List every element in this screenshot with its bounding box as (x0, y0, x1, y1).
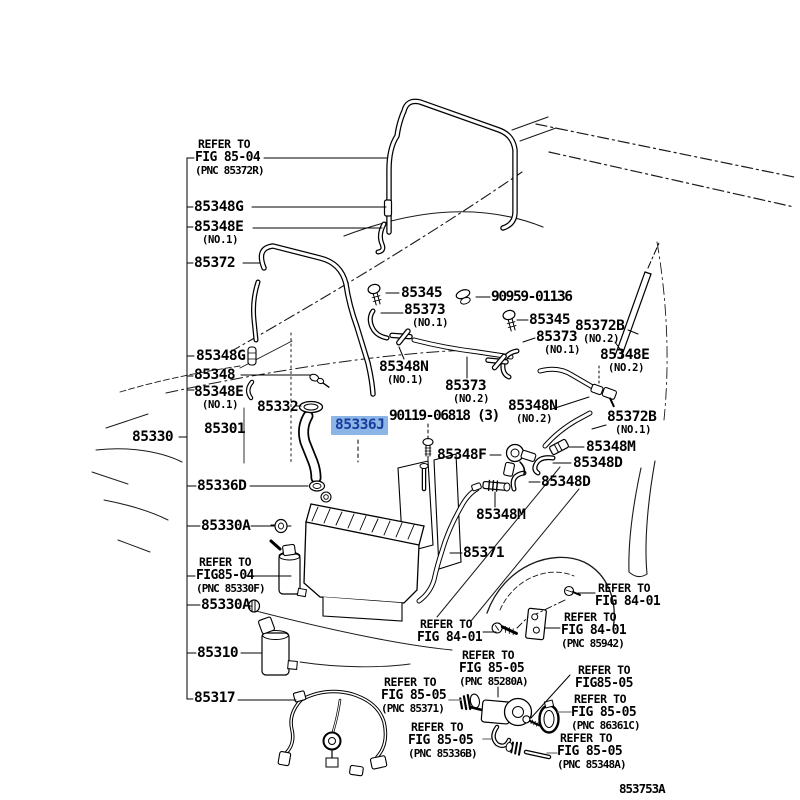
bolt-icon (565, 587, 581, 596)
part-number: 85301 (204, 421, 245, 437)
part-label-85371: 85371 (463, 546, 504, 561)
part-label-85348n: 85348N(NO.1) (379, 360, 428, 386)
hose-joint-icon (588, 383, 619, 406)
part-label-85372b-2: 85372B(NO.1) (607, 410, 656, 436)
part-label-85348g-2: 85348G (196, 349, 245, 364)
part-qualifier: (NO.1) (615, 425, 656, 436)
hose-connector-icon (483, 480, 511, 492)
part-label-85348g: 85348G (194, 200, 243, 215)
part-qualifier: (NO.2) (608, 363, 649, 374)
part-label-85330: 85330 (132, 430, 173, 445)
part-number: 85348G (194, 199, 243, 215)
part-label-85317: 85317 (194, 691, 235, 706)
washer-harness-85317-drawing (278, 691, 387, 776)
part-number: 85373 (445, 378, 486, 394)
part-number: 85348E (194, 219, 243, 235)
part-label-85330a-2: 85330A (201, 598, 250, 613)
refer-note-fig85-05-86361c: REFER TOFIG 85-05(PNC 86361C) (571, 693, 640, 732)
figure-code: 853753A (619, 781, 665, 796)
part-label-85348m-2: 85348M (476, 508, 525, 523)
part-qualifier: (NO.1) (202, 235, 243, 246)
part-label-85330a: 85330A (201, 519, 250, 534)
part-qualifier: (NO.2) (516, 414, 557, 425)
part-number: 85345 (401, 285, 442, 301)
part-label-85332: 85332 (257, 400, 298, 415)
part-number: 85317 (194, 690, 235, 706)
part-number: 85348G (196, 348, 245, 364)
part-number: 85336D (197, 478, 246, 494)
refer-note-fig85-05-85336b: REFER TOFIG 85-05(PNC 85336B) (408, 721, 477, 760)
part-label-85301: 85301 (204, 422, 245, 437)
part-number: 85371 (463, 545, 504, 561)
part-number: 85330 (132, 429, 173, 445)
filler-neck-85332-drawing (300, 402, 325, 492)
part-label-85345: 85345 (401, 286, 442, 301)
part-number: 85310 (197, 645, 238, 661)
part-label-85336d: 85336D (197, 479, 246, 494)
part-number: 85348 (194, 367, 235, 383)
part-label-85348m: 85348M (586, 440, 635, 455)
part-label-85348e: 85348E(NO.1) (194, 220, 243, 246)
part-qualifier: (NO.2) (453, 394, 489, 405)
refer-note-fig84-01-b: REFER TOFIG 84-01 (417, 618, 482, 645)
part-number: 85332 (257, 399, 298, 415)
part-number: 90119-06818 (3) (389, 408, 499, 424)
screw-icon (491, 622, 517, 636)
part-label-85310: 85310 (197, 646, 238, 661)
washer-pump-85310-drawing (258, 617, 297, 675)
part-number: 85348N (508, 398, 557, 414)
refer-note-fig84-01-a: REFER TOFIG 84-01 (595, 582, 660, 609)
grommet-icon (248, 347, 256, 365)
selected-part-label-85336j[interactable]: 85336J (331, 416, 388, 435)
hose-clip-icon (248, 382, 252, 398)
refer-note-fig85-04-85372r: REFER TOFIG 85-04(PNC 85372R) (195, 138, 264, 177)
hood-grommet-icon (455, 288, 473, 306)
part-qualifier: (NO.2) (583, 334, 624, 345)
part-number: 85372B (575, 318, 624, 334)
hood-hose-drawing (378, 101, 515, 252)
part-label-85372: 85372 (194, 256, 235, 271)
part-number: 85372 (194, 255, 235, 271)
part-label-85348e-2: 85348E(NO.1) (194, 385, 243, 411)
washer-tank-drawing (304, 454, 461, 621)
part-number: 85348E (600, 347, 649, 363)
part-number: 85348E (194, 384, 243, 400)
hose-nipple-icon (309, 373, 332, 387)
part-qualifier: (NO.1) (412, 318, 448, 329)
parts-diagram-page: 85348G 85348E(NO.1) 85372 85348G 85348 8… (0, 0, 800, 800)
bracket-85942-drawing (525, 608, 546, 640)
hose-connector-icon (505, 740, 549, 757)
part-label-85348n-2: 85348N(NO.2) (508, 399, 557, 425)
part-number: 85330A (201, 597, 250, 613)
part-label-85348d: 85348D (573, 456, 622, 471)
part-number: 85348F (437, 447, 486, 463)
part-label-85373: 85373(NO.1) (404, 303, 448, 329)
refer-note-fig85-05-85280a: REFER TOFIG 85-05(PNC 85280A) (459, 649, 528, 688)
part-number: 85348D (573, 455, 622, 471)
cowl-hose-85372-drawing (254, 246, 374, 394)
part-number: 85348M (586, 439, 635, 455)
elbow-hose-icon (494, 727, 510, 746)
refer-note-fig85-04-85330f: REFER TOFIG85-04(PNC 85330F) (196, 556, 265, 595)
washer-pump-85330f-drawing (271, 541, 306, 597)
part-label-85348e-3: 85348E(NO.2) (600, 348, 649, 374)
part-number: 85348M (476, 507, 525, 523)
hose-tee-joint-icon (391, 329, 411, 345)
bolt-icon (423, 439, 433, 461)
part-number: 85348N (379, 359, 428, 375)
part-number: 85330A (201, 518, 250, 534)
part-number: 85345 (529, 312, 570, 328)
refer-note-fig84-01-85942: REFER TOFIG 84-01(PNC 85942) (561, 611, 626, 650)
part-label-85348d-2: 85348D (541, 475, 590, 490)
part-number: 85373 (404, 302, 445, 318)
refer-note-fig85-05-a: REFER TOFIG85-05 (575, 664, 633, 691)
part-label-85373-2: 85373(NO.1) (536, 330, 580, 356)
part-number: 85348D (541, 474, 590, 490)
hood-hose-grommet-85348g (385, 200, 392, 216)
part-label-85345-2: 85345 (529, 313, 570, 328)
washer-nozzle-icon (502, 309, 519, 332)
part-label-85372b: 85372B(NO.2) (575, 319, 624, 345)
part-number: 85372B (607, 409, 656, 425)
refer-note-fig85-05-85348a: REFER TOFIG 85-05(PNC 85348A) (557, 732, 626, 771)
washer-nozzle-icon (367, 283, 384, 306)
tank-grommet-85336d (310, 481, 325, 491)
part-qualifier: (NO.1) (387, 375, 428, 386)
part-label-85348: 85348 (194, 368, 235, 383)
part-qualifier: (NO.1) (202, 400, 243, 411)
part-number: 90959-01136 (491, 289, 572, 305)
part-qualifier: (NO.1) (544, 345, 580, 356)
part-number: 85373 (536, 329, 577, 345)
part-label-90959-01136: 90959-01136 (491, 290, 572, 305)
refer-note-fig85-05-85371: REFER TOFIG 85-05(PNC 85371) (381, 676, 446, 715)
part-label-85348f: 85348F (437, 448, 486, 463)
part-label-85373-3: 85373(NO.2) (445, 379, 489, 405)
part-label-90119-06818: 90119-06818 (3) (389, 409, 499, 424)
